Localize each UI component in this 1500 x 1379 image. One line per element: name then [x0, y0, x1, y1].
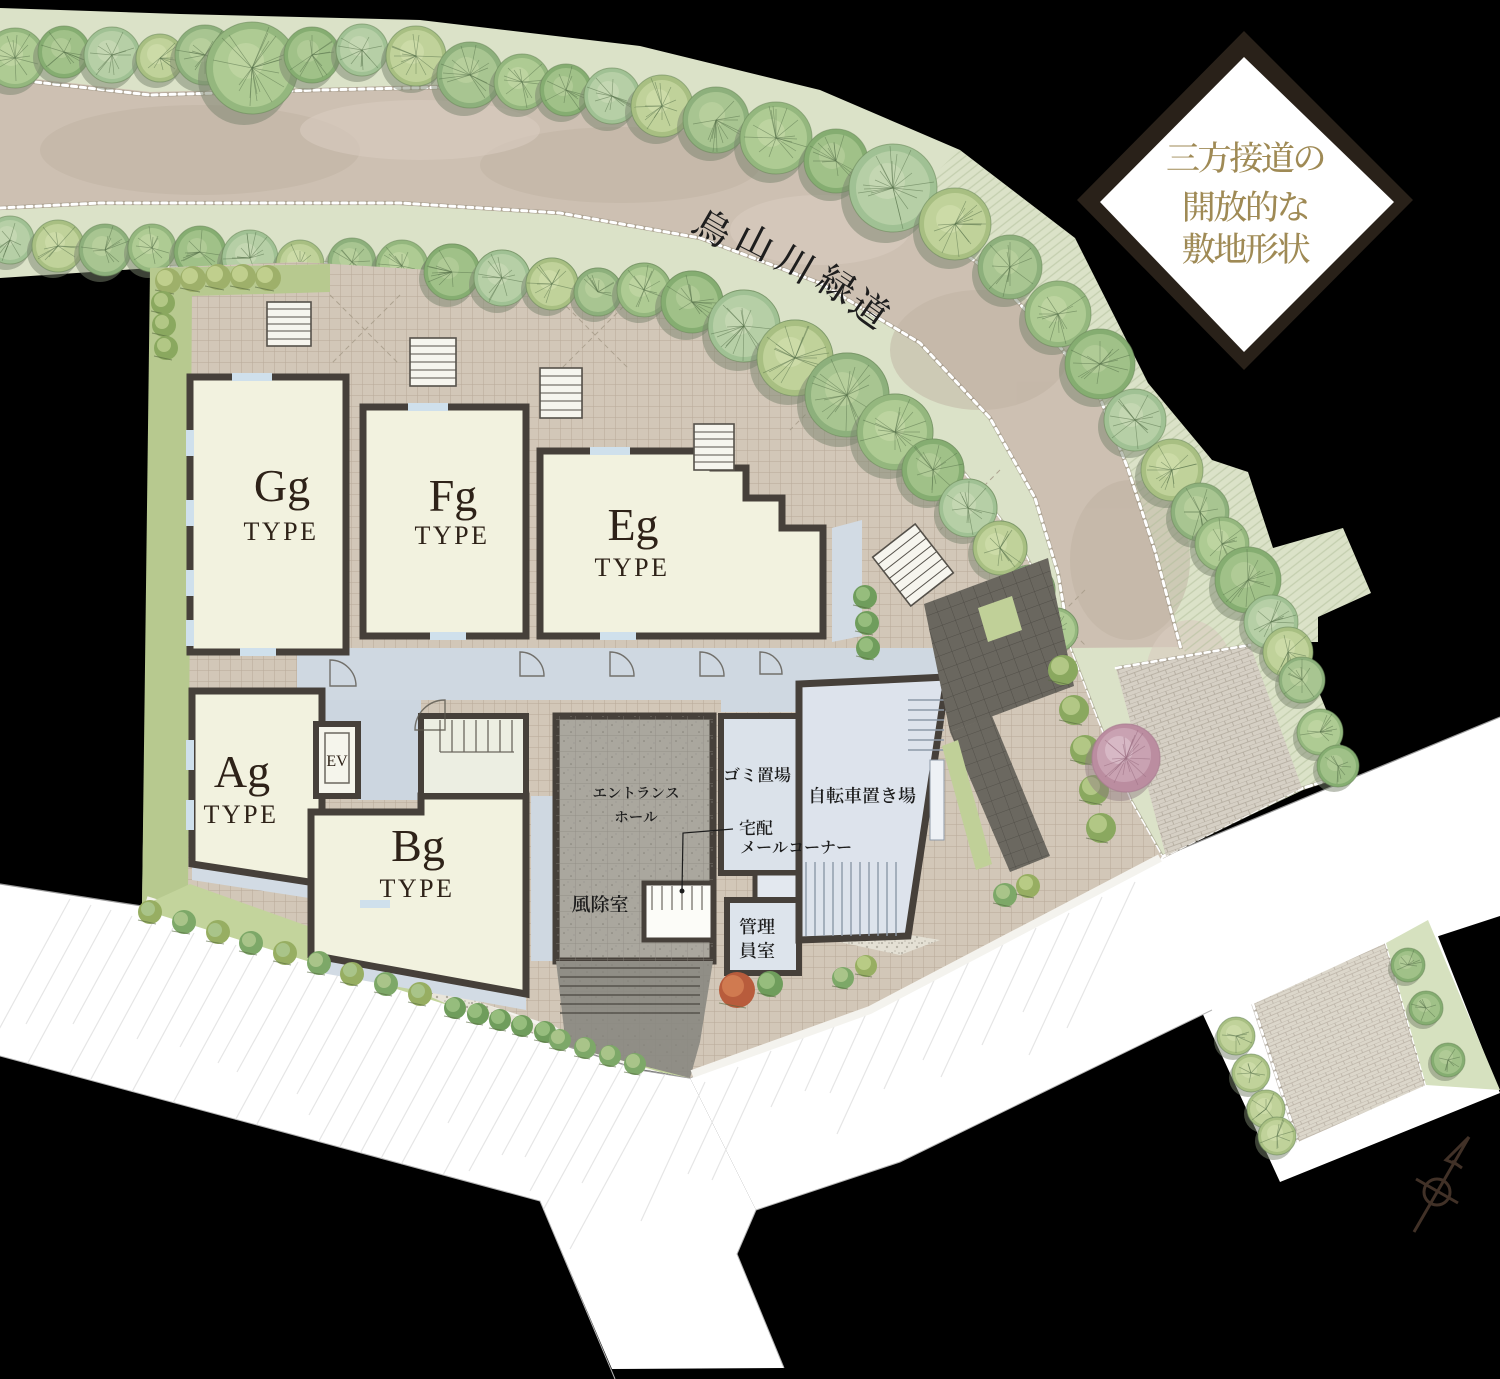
svg-text:Fg: Fg [429, 470, 478, 521]
svg-text:TYPE: TYPE [244, 517, 319, 546]
svg-text:Bg: Bg [391, 820, 445, 871]
svg-text:EV: EV [326, 753, 348, 770]
svg-text:TYPE: TYPE [204, 800, 279, 829]
svg-text:Eg: Eg [607, 499, 658, 550]
svg-text:TYPE: TYPE [415, 521, 490, 550]
svg-text:TYPE: TYPE [595, 553, 670, 582]
svg-text:Ag: Ag [214, 746, 270, 797]
svg-text:TYPE: TYPE [380, 874, 455, 903]
svg-text:Gg: Gg [254, 460, 310, 511]
